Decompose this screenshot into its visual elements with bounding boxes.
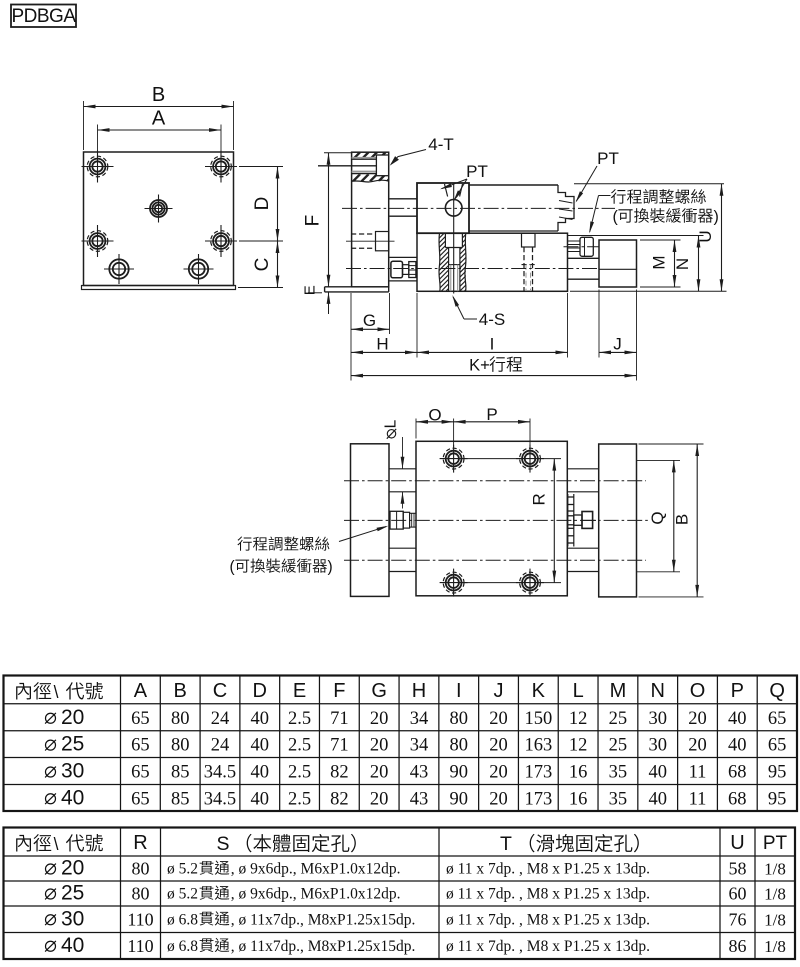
svg-text:30: 30 xyxy=(61,907,84,930)
svg-text:B: B xyxy=(174,680,187,702)
svg-text:ø 5.2: ø 5.2 xyxy=(167,861,198,878)
svg-text:68: 68 xyxy=(728,763,747,783)
svg-text:76: 76 xyxy=(729,909,747,929)
svg-text:J: J xyxy=(494,680,504,702)
svg-text:T: T xyxy=(500,833,512,855)
svg-text:E: E xyxy=(302,285,319,295)
svg-text:2.5: 2.5 xyxy=(288,709,311,729)
svg-text:11: 11 xyxy=(689,763,707,783)
svg-text:20: 20 xyxy=(489,736,508,756)
svg-text:D: D xyxy=(252,197,273,211)
svg-text:43: 43 xyxy=(410,789,429,809)
svg-text:N: N xyxy=(650,680,664,702)
svg-text:80: 80 xyxy=(132,884,150,904)
svg-text:80: 80 xyxy=(132,859,150,879)
svg-text:4-S: 4-S xyxy=(479,310,505,329)
svg-text:65: 65 xyxy=(768,709,787,729)
svg-text:30: 30 xyxy=(61,760,84,783)
svg-text:J: J xyxy=(613,335,622,354)
svg-text:95: 95 xyxy=(768,789,787,809)
svg-text:ø 6.8: ø 6.8 xyxy=(167,938,198,955)
svg-text:90: 90 xyxy=(450,789,469,809)
svg-text:34.5: 34.5 xyxy=(204,763,236,783)
svg-text:20: 20 xyxy=(61,857,84,880)
svg-text:ø 11 x 7dp. , M8 x P1.25 x 13d: ø 11 x 7dp. , M8 x P1.25 x 13dp. xyxy=(446,911,650,928)
svg-text:L: L xyxy=(573,680,584,702)
svg-text:85: 85 xyxy=(171,789,190,809)
svg-text:ø 11 x 7dp. , M8 x P1.25 x 13d: ø 11 x 7dp. , M8 x P1.25 x 13dp. xyxy=(446,938,650,955)
svg-text:I: I xyxy=(456,680,462,702)
svg-text:80: 80 xyxy=(171,709,190,729)
svg-text:25: 25 xyxy=(609,736,628,756)
svg-text:34: 34 xyxy=(410,736,429,756)
svg-text:16: 16 xyxy=(569,763,588,783)
svg-text:20: 20 xyxy=(370,789,389,809)
svg-text:20: 20 xyxy=(370,763,389,783)
svg-text:N: N xyxy=(673,258,692,270)
svg-text:PT: PT xyxy=(597,149,619,168)
svg-text:40: 40 xyxy=(728,709,747,729)
svg-text:P: P xyxy=(486,405,497,424)
svg-text:35: 35 xyxy=(609,789,628,809)
svg-text:C: C xyxy=(252,258,273,272)
svg-text:30: 30 xyxy=(648,709,667,729)
svg-text:G: G xyxy=(371,680,387,702)
svg-text:86: 86 xyxy=(729,936,747,956)
svg-text:2.5: 2.5 xyxy=(288,763,311,783)
svg-text:\: \ xyxy=(54,834,59,854)
svg-text:): ) xyxy=(714,209,719,226)
svg-text:40: 40 xyxy=(61,786,84,809)
svg-text:Q: Q xyxy=(769,680,785,702)
svg-text:24: 24 xyxy=(211,709,230,729)
svg-text:M: M xyxy=(610,680,627,702)
svg-text:): ) xyxy=(328,559,333,576)
svg-text:, ø 9x6dp., M6xP1.0x12dp.: , ø 9x6dp., M6xP1.0x12dp. xyxy=(231,861,401,878)
svg-text:F: F xyxy=(303,215,324,227)
svg-text:K+: K+ xyxy=(469,357,490,375)
svg-text:95: 95 xyxy=(768,763,787,783)
svg-text:110: 110 xyxy=(127,909,153,929)
svg-text:, ø 11x7dp., M8xP1.25x15dp.: , ø 11x7dp., M8xP1.25x15dp. xyxy=(231,911,416,928)
svg-text:1/8: 1/8 xyxy=(764,860,786,879)
svg-text:20: 20 xyxy=(688,709,707,729)
svg-text:, ø 9x6dp., M6xP1.0x12dp.: , ø 9x6dp., M6xP1.0x12dp. xyxy=(231,886,401,903)
svg-text:65: 65 xyxy=(768,736,787,756)
svg-text:80: 80 xyxy=(171,736,190,756)
svg-text:40: 40 xyxy=(251,789,270,809)
svg-text:PDBGA: PDBGA xyxy=(11,6,76,27)
svg-text:25: 25 xyxy=(61,882,84,905)
svg-text:80: 80 xyxy=(450,736,469,756)
svg-text:PT: PT xyxy=(466,162,488,181)
svg-text:82: 82 xyxy=(330,763,349,783)
svg-text:H: H xyxy=(412,680,426,702)
svg-text:A: A xyxy=(152,108,166,130)
svg-text:(: ( xyxy=(230,559,236,576)
svg-text:20: 20 xyxy=(688,736,707,756)
svg-text:I: I xyxy=(490,335,495,354)
svg-text:P: P xyxy=(731,680,744,702)
svg-text:PT: PT xyxy=(763,833,788,854)
svg-text:20: 20 xyxy=(370,709,389,729)
svg-text:65: 65 xyxy=(131,763,150,783)
svg-text:58: 58 xyxy=(729,859,747,879)
svg-text:E: E xyxy=(293,680,306,702)
svg-text:25: 25 xyxy=(609,709,628,729)
svg-text:L: L xyxy=(383,419,400,428)
svg-text:150: 150 xyxy=(524,709,552,729)
svg-text:1/8: 1/8 xyxy=(764,910,786,929)
svg-text:O: O xyxy=(690,680,706,702)
svg-text:40: 40 xyxy=(251,736,270,756)
svg-text:1/8: 1/8 xyxy=(764,937,786,956)
svg-text:4-T: 4-T xyxy=(428,135,454,154)
svg-text:H: H xyxy=(376,335,388,354)
svg-text:2.5: 2.5 xyxy=(288,736,311,756)
svg-text:65: 65 xyxy=(131,736,150,756)
svg-text:2.5: 2.5 xyxy=(288,789,311,809)
svg-text:16: 16 xyxy=(569,789,588,809)
svg-text:25: 25 xyxy=(61,733,84,756)
svg-text:F: F xyxy=(333,680,345,702)
svg-text:40: 40 xyxy=(728,736,747,756)
svg-text:A: A xyxy=(134,680,148,702)
svg-text:35: 35 xyxy=(609,763,628,783)
svg-text:12: 12 xyxy=(569,709,588,729)
svg-text:ø 11 x 7dp. , M8 x P1.25 x 13d: ø 11 x 7dp. , M8 x P1.25 x 13dp. xyxy=(446,861,650,878)
svg-text:40: 40 xyxy=(648,763,667,783)
svg-text:71: 71 xyxy=(330,709,349,729)
svg-text:71: 71 xyxy=(330,736,349,756)
svg-text:R: R xyxy=(133,832,147,854)
svg-text:, ø 11x7dp., M8xP1.25x15dp.: , ø 11x7dp., M8xP1.25x15dp. xyxy=(231,938,416,955)
svg-text:40: 40 xyxy=(648,789,667,809)
svg-text:90: 90 xyxy=(450,763,469,783)
svg-text:B: B xyxy=(673,514,692,525)
svg-text:173: 173 xyxy=(524,763,552,783)
svg-text:85: 85 xyxy=(171,763,190,783)
svg-text:C: C xyxy=(213,680,227,702)
svg-text:20: 20 xyxy=(489,709,508,729)
svg-text:163: 163 xyxy=(524,736,552,756)
svg-text:60: 60 xyxy=(729,884,747,904)
svg-text:R: R xyxy=(530,493,549,505)
svg-text:ø 5.2: ø 5.2 xyxy=(167,886,198,903)
svg-text:65: 65 xyxy=(131,709,150,729)
svg-text:173: 173 xyxy=(524,789,552,809)
svg-text:20: 20 xyxy=(489,789,508,809)
svg-text:M: M xyxy=(650,255,669,269)
svg-text:\: \ xyxy=(54,682,59,702)
svg-text:Q: Q xyxy=(648,511,667,524)
svg-text:S: S xyxy=(216,833,229,855)
svg-text:110: 110 xyxy=(127,936,153,956)
svg-text:30: 30 xyxy=(648,736,667,756)
svg-text:1/8: 1/8 xyxy=(764,885,786,904)
svg-text:B: B xyxy=(152,84,165,106)
svg-text:20: 20 xyxy=(61,706,84,729)
svg-text:D: D xyxy=(253,680,267,702)
svg-text:43: 43 xyxy=(410,763,429,783)
svg-text:11: 11 xyxy=(689,789,707,809)
svg-text:40: 40 xyxy=(251,763,270,783)
svg-text:ø 11 x 7dp. , M8 x P1.25 x 13d: ø 11 x 7dp. , M8 x P1.25 x 13dp. xyxy=(446,886,650,903)
svg-text:U: U xyxy=(696,230,715,242)
svg-text:12: 12 xyxy=(569,736,588,756)
svg-text:34: 34 xyxy=(410,709,429,729)
svg-text:24: 24 xyxy=(211,736,230,756)
svg-text:U: U xyxy=(730,832,744,854)
svg-text:40: 40 xyxy=(251,709,270,729)
svg-text:34.5: 34.5 xyxy=(204,789,236,809)
svg-text:G: G xyxy=(363,311,376,330)
svg-text:(: ( xyxy=(613,209,619,226)
svg-text:82: 82 xyxy=(330,789,349,809)
svg-text:ø 6.8: ø 6.8 xyxy=(167,911,198,928)
svg-text:20: 20 xyxy=(489,763,508,783)
svg-text:68: 68 xyxy=(728,789,747,809)
svg-text:65: 65 xyxy=(131,789,150,809)
svg-text:20: 20 xyxy=(370,736,389,756)
svg-text:40: 40 xyxy=(61,934,84,957)
svg-text:80: 80 xyxy=(450,709,469,729)
svg-text:K: K xyxy=(532,680,546,702)
svg-text:O: O xyxy=(428,405,441,424)
